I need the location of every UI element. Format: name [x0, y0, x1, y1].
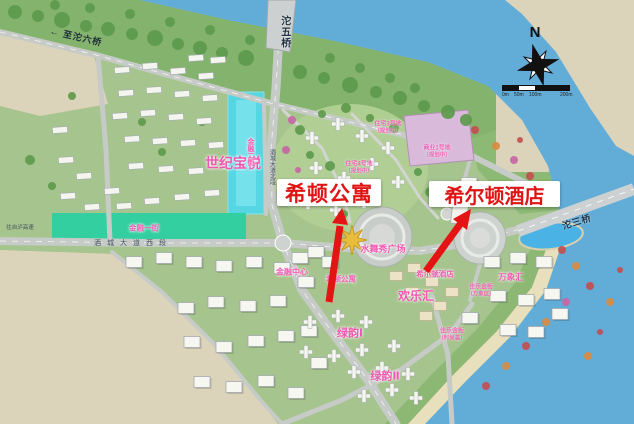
- scale-bar-ticks: 0m 50m 100m 200m: [502, 91, 578, 99]
- landmark-star-building: [337, 225, 367, 255]
- north-label: N: [498, 24, 572, 41]
- scale-tick-100: 100m: [529, 92, 542, 98]
- scale-tick-0: 0m: [502, 92, 509, 98]
- financial-strip: [52, 213, 246, 239]
- scale-seg-1: [503, 86, 519, 90]
- masterplan-map: N 0m 50m 100m 200m ← 至沱六桥沱五桥世纪宝悦金融二街酒城大道…: [0, 0, 634, 424]
- scale-bar: 0m 50m 100m 200m: [502, 85, 578, 99]
- roundabout-west: [275, 235, 291, 251]
- financial-canal-inner: [236, 100, 256, 206]
- hotel-callout: 希尔顿酒店: [429, 181, 560, 207]
- scale-tick-50: 50m: [514, 92, 524, 98]
- hotel-plaza-core: [470, 228, 490, 248]
- apartment-callout: 希顿公寓: [277, 179, 381, 206]
- scale-tick-200: 200m: [560, 92, 573, 98]
- water-show-plaza-core: [369, 224, 395, 250]
- scale-seg-2: [535, 86, 569, 90]
